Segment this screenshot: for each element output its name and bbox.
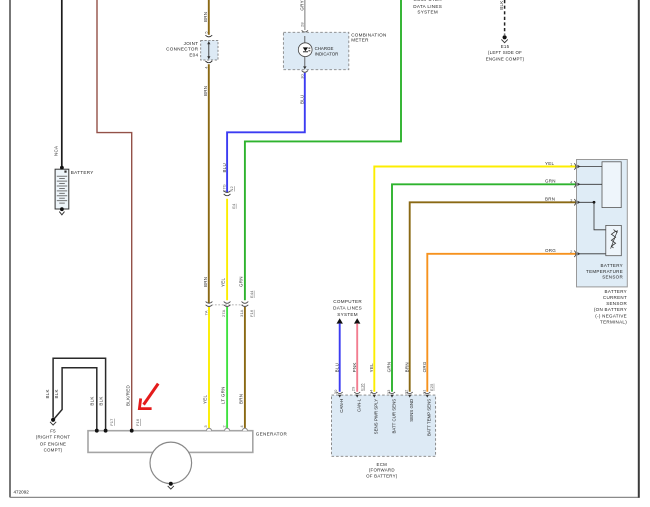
svg-text:INDICATOR: INDICATOR [315, 52, 339, 57]
svg-text:(LEFT SIDE OF: (LEFT SIDE OF [488, 50, 522, 55]
svg-text:(ON BATTERY: (ON BATTERY [594, 307, 627, 312]
svg-text:YEL: YEL [369, 363, 374, 373]
svg-text:E25: E25 [429, 383, 434, 391]
svg-text:F16: F16 [249, 309, 254, 317]
svg-text:F17: F17 [109, 418, 114, 426]
svg-text:BLK: BLK [90, 396, 95, 405]
svg-text:COMPT): COMPT) [44, 448, 63, 453]
svg-text:BLU: BLU [222, 163, 227, 173]
svg-text:CAN-H: CAN-H [339, 399, 344, 413]
svg-text:YEL: YEL [545, 161, 555, 166]
svg-text:BLU: BLU [299, 94, 304, 104]
svg-text:GRN: GRN [545, 179, 556, 184]
svg-text:ORG: ORG [545, 248, 556, 253]
svg-text:BATTERY: BATTERY [71, 170, 94, 175]
svg-text:28: 28 [299, 22, 304, 27]
svg-text:BRN: BRN [203, 277, 208, 287]
svg-text:E16: E16 [359, 383, 364, 391]
svg-text:GRN: GRN [387, 362, 392, 373]
svg-text:N2: N2 [229, 186, 234, 192]
svg-text:(RIGHT FRONT: (RIGHT FRONT [36, 435, 70, 440]
svg-text:472092: 472092 [14, 490, 30, 495]
svg-text:SYSTEM: SYSTEM [337, 312, 358, 317]
svg-text:ECM: ECM [377, 462, 388, 467]
svg-text:BLK: BLK [499, 1, 504, 10]
svg-text:COMPUTER: COMPUTER [413, 0, 442, 2]
svg-text:BRN: BRN [203, 86, 208, 96]
svg-text:OF BATTERY): OF BATTERY) [366, 473, 398, 478]
svg-text:BLK: BLK [54, 389, 59, 398]
svg-text:(-) NEGATIVE: (-) NEGATIVE [595, 313, 627, 318]
svg-text:CAN-L: CAN-L [357, 398, 362, 412]
svg-text:BATTERY: BATTERY [601, 263, 623, 268]
svg-text:BATTERY: BATTERY [605, 289, 627, 294]
svg-text:27A: 27A [221, 309, 226, 317]
svg-text:30: 30 [333, 389, 338, 394]
svg-text:BATT CUR SENS: BATT CUR SENS [391, 399, 396, 434]
svg-text:BLK/RED: BLK/RED [126, 384, 131, 406]
svg-text:NCA: NCA [53, 146, 58, 156]
svg-text:SENS PWR SPLY: SENS PWR SPLY [374, 399, 379, 435]
svg-text:BRN: BRN [238, 394, 243, 404]
svg-text:LT GRN: LT GRN [221, 386, 226, 404]
svg-text:CURRENT: CURRENT [603, 295, 627, 300]
svg-text:DATA LINES: DATA LINES [333, 305, 362, 310]
svg-text:DATA LINES: DATA LINES [413, 4, 442, 9]
svg-text:BRN: BRN [404, 362, 409, 372]
svg-text:COMPUTER: COMPUTER [333, 299, 362, 304]
svg-text:7A: 7A [204, 310, 209, 315]
svg-text:ORG: ORG [422, 361, 427, 372]
svg-text:METER: METER [351, 38, 369, 43]
svg-text:SENSOR: SENSOR [602, 274, 623, 279]
svg-text:E4: E4 [231, 203, 236, 209]
svg-text:YEL: YEL [202, 394, 207, 404]
svg-text:E04: E04 [189, 52, 198, 57]
svg-text:GRN: GRN [238, 276, 243, 287]
svg-text:CHARGE: CHARGE [315, 46, 334, 51]
svg-text:BATT TEMP SENS: BATT TEMP SENS [427, 399, 432, 436]
svg-text:TERMINAL): TERMINAL) [600, 319, 627, 324]
svg-text:E44: E44 [249, 290, 254, 298]
svg-text:SENSOR: SENSOR [606, 301, 627, 306]
svg-text:ENGINE COMPT): ENGINE COMPT) [486, 57, 525, 62]
svg-text:BLU: BLU [334, 363, 339, 373]
svg-text:31A: 31A [239, 309, 244, 317]
svg-text:29: 29 [351, 386, 356, 391]
svg-text:F16: F16 [135, 418, 140, 426]
svg-text:E15: E15 [501, 44, 510, 49]
svg-text:GRY: GRY [299, 0, 304, 10]
svg-text:SYSTEM: SYSTEM [417, 10, 438, 15]
svg-text:OF ENGINE: OF ENGINE [40, 441, 66, 446]
svg-text:PNK: PNK [352, 362, 357, 372]
svg-text:BLK: BLK [99, 396, 104, 405]
svg-text:JOINT: JOINT [184, 41, 199, 46]
svg-text:CONNECTOR: CONNECTOR [166, 47, 199, 52]
svg-text:GENERATOR: GENERATOR [256, 431, 288, 436]
svg-text:30: 30 [299, 73, 304, 78]
svg-text:TEMPERATURE: TEMPERATURE [586, 269, 623, 274]
svg-text:BRN: BRN [545, 197, 555, 202]
svg-text:YEL: YEL [221, 277, 226, 287]
svg-text:SENS GND: SENS GND [409, 399, 414, 422]
svg-text:BLK: BLK [45, 389, 50, 398]
svg-text:F5: F5 [50, 429, 56, 434]
svg-text:BRN: BRN [203, 12, 208, 22]
svg-text:(FORWARD: (FORWARD [369, 468, 395, 473]
